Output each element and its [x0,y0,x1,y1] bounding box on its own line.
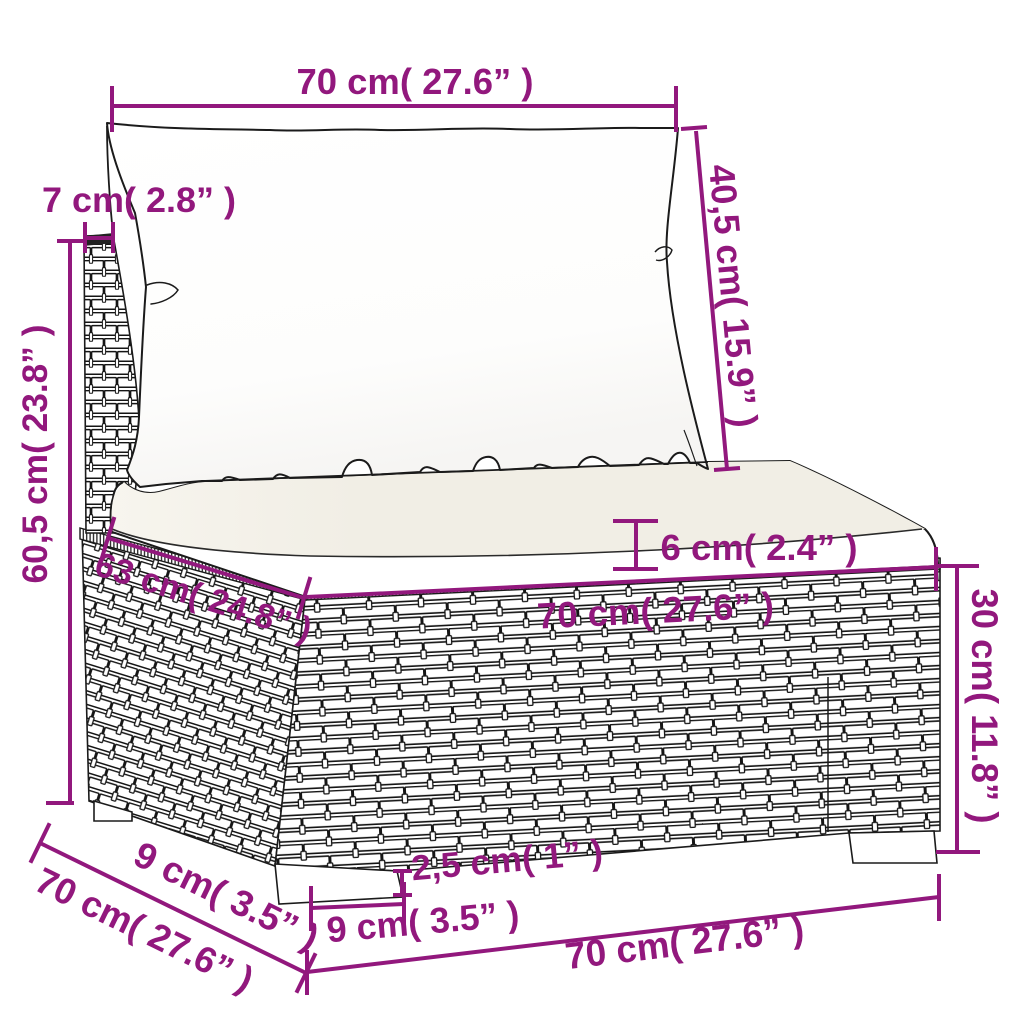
svg-text:60,5 cm( 23.8” ): 60,5 cm( 23.8” ) [16,325,55,584]
svg-text:70 cm( 27.6” ): 70 cm( 27.6” ) [297,61,534,102]
svg-text:6 cm( 2.4” ): 6 cm( 2.4” ) [661,527,858,568]
svg-text:7 cm( 2.8” ): 7 cm( 2.8” ) [42,181,236,220]
svg-text:30 cm( 11.8” ): 30 cm( 11.8” ) [964,589,1006,824]
